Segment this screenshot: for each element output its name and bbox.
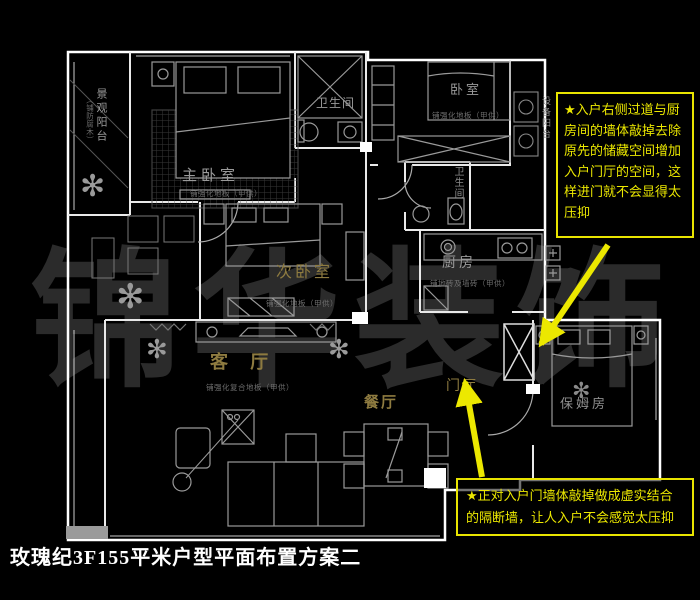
room-note-living-room: 铺强化复合地板（甲供） [206, 384, 294, 392]
room-label-view-balcony: 景观阳台 [96, 88, 107, 144]
room-note-second-bedroom: 铺强化地板（甲供） [266, 300, 338, 308]
room-label-foyer: 门厅 [446, 379, 478, 393]
room-label-second-bedroom: 次卧室 [276, 264, 333, 280]
room-label-bath-top: 卫生间 [316, 97, 355, 109]
room-label-equip-balcony: 设备阳台 [540, 96, 549, 140]
room-label-nanny-room: 保姆房 [560, 398, 608, 411]
room-labels: 景观阳台 （铺防腐木） 主卧室 铺强化地板（甲供） 卫生间 卧室 铺强化地板（甲… [0, 0, 700, 600]
room-label-living-room: 客 厅 [210, 354, 276, 372]
room-label-kitchen: 厨房 [442, 256, 476, 270]
room-label-bedroom: 卧室 [450, 84, 482, 97]
room-label-dining-room: 餐厅 [364, 395, 398, 410]
room-note-view-balcony: （铺防腐木） [86, 96, 94, 144]
floorplan-page: 锦华装饰 [0, 0, 700, 600]
room-note-bedroom: 铺强化地板（甲供） [432, 112, 504, 120]
room-label-bath-mid: 卫生间 [452, 166, 462, 199]
room-note-master-bedroom: 铺强化地板（甲供） [190, 190, 262, 198]
room-note-kitchen: 铺地砖及墙砖（甲供） [430, 280, 510, 288]
room-label-master-bedroom: 主卧室 [182, 168, 239, 183]
plan-title: 玫瑰纪3F155平米户型平面布置方案二 [10, 541, 361, 570]
